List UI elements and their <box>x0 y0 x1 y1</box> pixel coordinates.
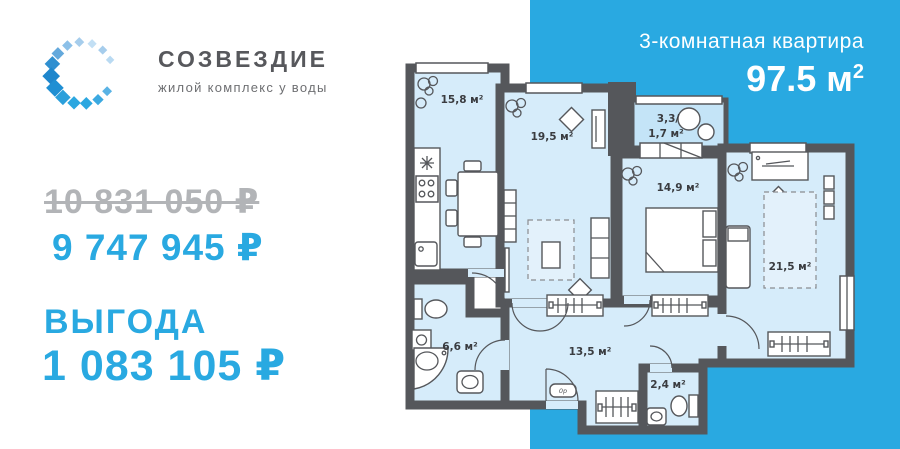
pillow-icon <box>703 240 716 266</box>
wc-area-label: 2,4 м² <box>650 379 686 391</box>
bathroom-area-label: 6,6 м² <box>442 341 478 353</box>
bedroom2-area-label: 21,5 м² <box>769 261 812 273</box>
living-area-label: 19,5 м² <box>531 131 574 143</box>
vent-star-icon <box>420 156 434 170</box>
logo: СОЗВЕЗДИЕ жилой комплекс у воды <box>30 18 360 118</box>
wc-toilet-icon <box>671 395 698 417</box>
balcony-chair-icon <box>698 124 714 140</box>
single-bed-icon <box>726 226 750 288</box>
balcony-table-icon <box>678 108 700 130</box>
hall-wardrobe-icon <box>652 295 708 316</box>
kitchen-counter <box>414 148 440 270</box>
balcony-door-window <box>640 143 702 158</box>
bedroom1-door-opening <box>624 296 650 304</box>
logo-title: СОЗВЕЗДИЕ <box>158 46 328 73</box>
benefit-value: 1 083 105 ₽ <box>42 341 286 391</box>
pillow-icon <box>703 211 716 237</box>
bedroom2-rug <box>764 192 816 288</box>
toilet-icon <box>414 299 447 319</box>
coffee-table-icon <box>542 242 560 268</box>
kitchen-area-label: 15,8 м² <box>441 94 484 106</box>
chair-icon <box>446 180 457 196</box>
entry-door-opening <box>546 401 578 409</box>
kitchen-sink-icon <box>415 242 437 266</box>
kitchen-window <box>416 63 488 73</box>
bedroom2-door-opening <box>717 314 727 346</box>
new-price: 9 747 945 ₽ <box>52 226 264 269</box>
sofa-icon <box>591 218 609 278</box>
entry-wardrobe-icon <box>596 391 638 423</box>
stove-icon <box>416 176 438 202</box>
living-window <box>526 83 582 93</box>
balcony-glazing <box>636 96 722 104</box>
floor-plan: 0р 15,8 м² 19,5 м² 3,3/ 1,7 м² 14,9 м² 2… <box>400 58 860 448</box>
old-price: 10 831 050 ₽ <box>44 182 259 222</box>
washing-machine-icon <box>412 330 431 350</box>
hallway-area-label: 13,5 м² <box>569 346 612 358</box>
pillow-icon <box>728 228 748 241</box>
bathroom-door-opening <box>500 340 509 370</box>
shoe-cabinet: 0р <box>550 384 576 397</box>
wc-sink-icon <box>647 408 666 425</box>
tv-stand-icon <box>592 110 605 148</box>
bedroom2-right-window <box>840 276 854 330</box>
ad-banner: СОЗВЕЗДИЕ жилой комплекс у воды 10 831 0… <box>0 0 900 449</box>
chair-icon <box>464 237 481 247</box>
bathroom-sink-icon <box>457 371 483 393</box>
chair-icon <box>446 210 457 226</box>
shoe-cabinet-label: 0р <box>559 387 567 395</box>
bedroom1-area-label: 14,9 м² <box>657 182 700 194</box>
constellation-ring-icon <box>32 20 132 120</box>
desk-icon <box>752 152 808 180</box>
wc-door-opening <box>650 364 672 372</box>
balcony-area-label-1: 3,3/ <box>657 113 680 125</box>
hall-wardrobe-icon <box>547 295 603 316</box>
logo-subtitle: жилой комплекс у воды <box>158 80 328 95</box>
logo-text-block: СОЗВЕЗДИЕ жилой комплекс у воды <box>158 46 328 95</box>
balcony-area-label-2: 1,7 м² <box>648 128 684 140</box>
apartment-type: 3-комнатная квартира <box>639 30 864 54</box>
benefit-label: ВЫГОДА <box>44 303 207 342</box>
wardrobe-icon <box>768 332 830 356</box>
diamond-star-icons <box>42 37 114 110</box>
wall-shelves-icon <box>824 176 834 219</box>
chair-icon <box>464 161 481 171</box>
double-bed-icon <box>646 208 718 272</box>
